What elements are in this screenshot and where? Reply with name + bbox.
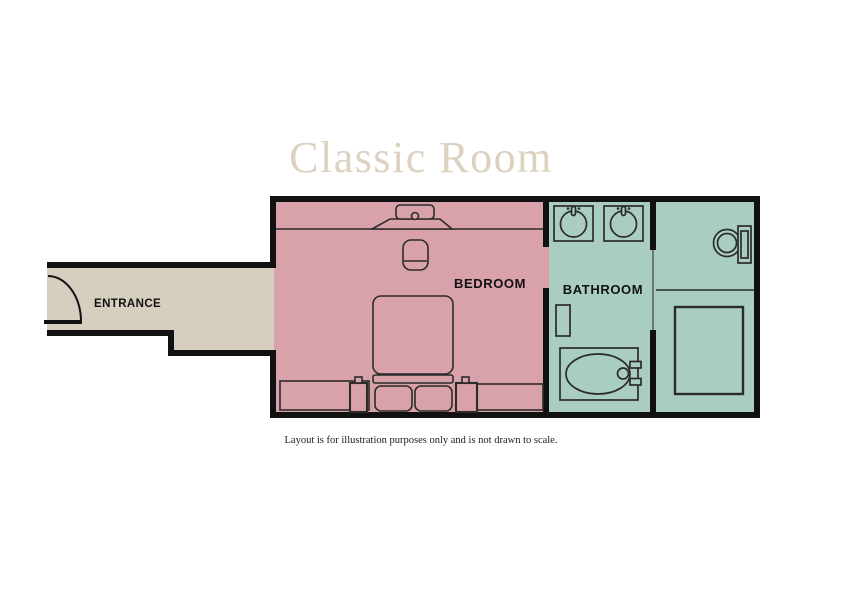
- wall-top: [270, 196, 760, 202]
- corridor-wall-top: [47, 262, 276, 268]
- floor-plan: ENTRANCE BEDROOM BATHROOM: [0, 0, 842, 596]
- sink-left-faucet: [572, 207, 576, 216]
- pillow-right: [415, 386, 452, 411]
- entrance-extension-area: [174, 330, 274, 350]
- pillow-left: [375, 386, 412, 411]
- bedroom-bathroom-wall-lower: [543, 288, 549, 418]
- sink-left-tap-dot: [578, 207, 581, 210]
- sink-right-faucet: [622, 207, 626, 216]
- bed-duvet: [373, 296, 453, 374]
- shower-tray: [675, 307, 743, 394]
- bathroom-label: BATHROOM: [563, 282, 643, 297]
- bathroom-toilet-wall-upper: [650, 196, 656, 250]
- entrance-label: ENTRANCE: [94, 298, 161, 310]
- bathroom-toilet-wall-lower: [650, 330, 656, 418]
- corridor-wall-bottom: [47, 330, 174, 336]
- tv-knob: [412, 213, 419, 220]
- extension-wall-bottom: [168, 350, 276, 356]
- nightstand-right: [456, 383, 477, 412]
- floor-plan-page: { "title": { "text": "Classic Room", "co…: [0, 0, 842, 596]
- lamp-left: [355, 377, 362, 383]
- toilet-bowl-inner: [718, 234, 737, 253]
- sink-right-tap-dot: [628, 207, 631, 210]
- bathtub-tap-upper: [630, 362, 641, 369]
- door-leaf: [44, 320, 82, 324]
- disclaimer-caption: Layout is for illustration purposes only…: [0, 435, 842, 446]
- wall-bottom: [270, 412, 760, 418]
- bedroom-label: BEDROOM: [454, 276, 526, 291]
- toilet-tank-inner: [741, 231, 748, 258]
- bed-fold: [373, 375, 453, 383]
- wall-left-upper: [270, 196, 276, 268]
- console-right: [477, 384, 543, 410]
- wall-right: [754, 196, 760, 418]
- bathtub-drain: [618, 368, 629, 379]
- lamp-right: [462, 377, 469, 383]
- sink-right-tap-dot: [617, 207, 620, 210]
- wall-left-lower: [270, 356, 276, 418]
- sink-left-tap-dot: [567, 207, 570, 210]
- bathtub-tap-lower: [630, 379, 641, 386]
- nightstand-left: [350, 383, 367, 412]
- chair: [403, 240, 428, 270]
- towel-shelf: [556, 305, 570, 336]
- bedroom-bathroom-wall-upper: [543, 196, 549, 247]
